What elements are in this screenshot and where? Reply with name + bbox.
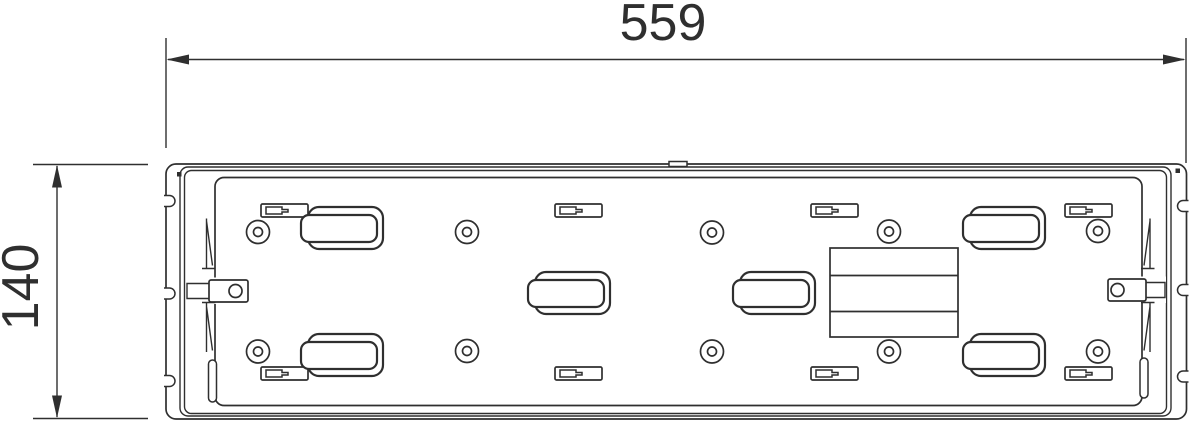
rivet-hole xyxy=(878,340,901,363)
rivet-hole xyxy=(878,220,901,243)
side-notch xyxy=(1178,371,1189,382)
width-dimension-label: 559 xyxy=(620,0,707,52)
rivet-hole xyxy=(1087,340,1110,363)
spring-fingers xyxy=(202,219,1155,403)
side-notch xyxy=(1178,201,1189,212)
frame-inner-opening xyxy=(215,178,1142,406)
weld-dot xyxy=(1176,169,1181,174)
rivet-hole xyxy=(456,221,479,244)
clip-slot xyxy=(1065,367,1112,380)
side-notch xyxy=(1178,285,1189,296)
spring-finger xyxy=(202,219,216,269)
tongue-tab xyxy=(733,272,815,314)
clip-slot xyxy=(555,367,602,380)
tongue-tab xyxy=(528,272,610,314)
clip-slot xyxy=(811,367,858,380)
frame-outer-edge xyxy=(166,164,1187,419)
frame-outline xyxy=(166,164,1187,419)
clip-slot xyxy=(261,367,308,380)
side-notch xyxy=(164,196,175,207)
leaf-spring xyxy=(209,360,217,402)
right-latch-tab xyxy=(1105,277,1166,304)
mounting-frame-drawing: 559 140 xyxy=(0,0,1190,422)
rivet-hole xyxy=(247,340,270,363)
latch-hole xyxy=(229,285,242,298)
arrowhead-down xyxy=(52,396,62,419)
arrowhead-right xyxy=(1163,55,1186,65)
spring-finger xyxy=(1141,303,1155,353)
leaf-spring xyxy=(1140,358,1148,398)
height-dimension: 140 xyxy=(0,165,148,419)
clip-slot xyxy=(261,204,308,217)
arrowhead-left xyxy=(167,55,190,65)
weld-dot xyxy=(177,172,182,177)
clip-slot xyxy=(1065,204,1112,217)
spring-finger xyxy=(1141,219,1155,269)
rivet-hole xyxy=(701,340,724,363)
width-dimension: 559 xyxy=(166,0,1186,163)
clip-slot xyxy=(555,204,602,217)
left-latch-tab xyxy=(186,278,249,305)
rivet-hole xyxy=(456,340,479,363)
rivet-hole xyxy=(247,221,270,244)
side-notch xyxy=(164,288,175,299)
technical-drawing-page: 559 140 xyxy=(0,0,1190,422)
side-notch xyxy=(164,376,175,387)
latch-hole xyxy=(1111,284,1124,297)
arrowhead-up xyxy=(52,165,62,188)
height-dimension-label: 140 xyxy=(0,244,50,331)
spring-finger xyxy=(202,303,216,353)
tongue-tab xyxy=(963,334,1045,376)
rivet-hole xyxy=(701,221,724,244)
tongue-tab xyxy=(301,334,383,376)
tongue-tab xyxy=(963,207,1045,249)
frame-rolled-edge-1 xyxy=(180,167,1171,416)
label-block xyxy=(830,248,958,337)
top-edge-tab xyxy=(669,162,687,167)
rivet-hole xyxy=(1087,220,1110,243)
clip-slot xyxy=(811,204,858,217)
tongue-tab xyxy=(301,207,383,249)
